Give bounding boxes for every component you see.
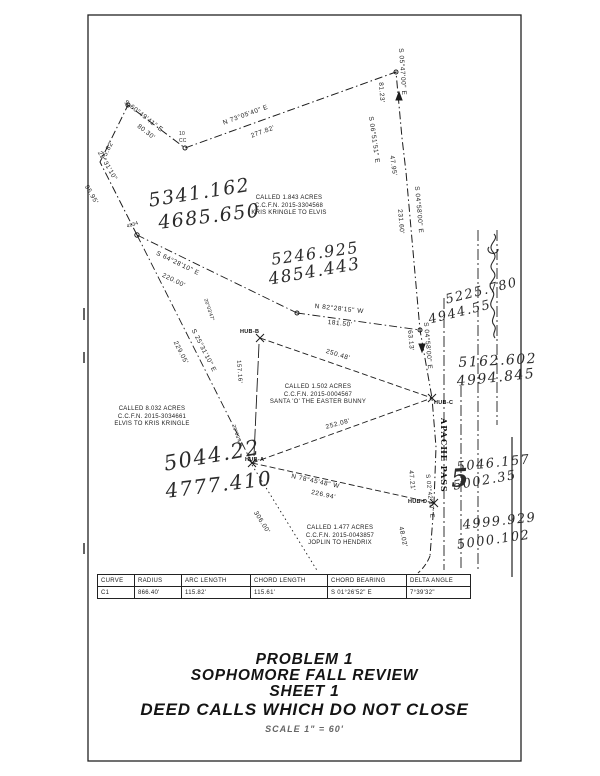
curve-table-row: C1 866.40' 115.82' 115.61' S 01°26'52" E… — [98, 587, 471, 599]
title-block: PROBLEM 1 SOPHOMORE FALL REVIEW SHEET 1 … — [88, 652, 521, 734]
curve-c1 — [418, 556, 430, 573]
parcel-acreage: CALLED 1.477 ACRES — [290, 525, 390, 533]
parcel-grantor: SANTA 'O' THE EASTER BUNNY — [262, 399, 374, 407]
hub-b-label: HUB-B — [240, 329, 259, 335]
curve-delta: 7°39'32" — [407, 587, 471, 599]
parcel-filing: C.C.F.N. 2015-0043857 — [290, 533, 390, 541]
curve-radius: 866.40' — [135, 587, 182, 599]
scale-note: SCALE 1" = 60' — [88, 724, 521, 734]
parcel-note-south: CALLED 1.477 ACRES C.C.F.N. 2015-0043857… — [290, 525, 390, 548]
col-header-chord-length: CHORD LENGTH — [251, 575, 328, 587]
curve-chord: 115.61' — [251, 587, 328, 599]
distance-label: 81.23' — [377, 82, 385, 103]
col-header-arc-length: ARC LENGTH — [182, 575, 251, 587]
title-problem: PROBLEM 1 — [88, 652, 521, 668]
parcel-filing: C.C.F.N. 2015-0004567 — [262, 392, 374, 400]
parcel-filing: C.C.F.N. 2015-3034661 — [104, 414, 200, 422]
title-sheet: SHEET 1 — [88, 684, 521, 700]
col-header-curve: CURVE — [98, 575, 135, 587]
parcel-acreage: CALLED 1.502 ACRES — [262, 384, 374, 392]
vertex-markers — [126, 70, 438, 507]
point-label: 10 — [179, 131, 185, 137]
curve-table: CURVE RADIUS ARC LENGTH CHORD LENGTH CHO… — [97, 574, 471, 599]
col-header-chord-bearing: CHORD BEARING — [328, 575, 407, 587]
parcel-note-center: CALLED 1.502 ACRES C.C.F.N. 2015-0004567… — [262, 384, 374, 407]
col-header-delta-angle: DELTA ANGLE — [407, 575, 471, 587]
street-name-apache-pass: APACHE PASS — [439, 418, 449, 493]
title-review: SOPHOMORE FALL REVIEW — [88, 668, 521, 684]
title-deed-calls: DEED CALLS WHICH DO NOT CLOSE — [88, 700, 521, 719]
hub-c-label: HUB-C — [434, 400, 453, 406]
parcel-note-west: CALLED 8.032 ACRES C.C.F.N. 2015-3034661… — [104, 406, 200, 429]
curve-bearing: S 01°26'52" E — [328, 587, 407, 599]
parcel-grantor: ELVIS TO KRIS KRINGLE — [104, 421, 200, 429]
parcel-grantor: JOPLIN TO HENDRIX — [290, 540, 390, 548]
curve-table-header-row: CURVE RADIUS ARC LENGTH CHORD LENGTH CHO… — [98, 575, 471, 587]
parcel-acreage: CALLED 8.032 ACRES — [104, 406, 200, 414]
scanned-survey-sheet: S 60°49'41" E 80.30' 75.82' 25°31'10" 95… — [0, 0, 600, 776]
handwritten-big-five: 5 — [450, 463, 471, 493]
curve-arc: 115.82' — [182, 587, 251, 599]
col-header-radius: RADIUS — [135, 575, 182, 587]
curve-id: C1 — [98, 587, 135, 599]
hub-d-label: HUB-D — [408, 499, 427, 505]
point-label: CC — [179, 138, 187, 144]
